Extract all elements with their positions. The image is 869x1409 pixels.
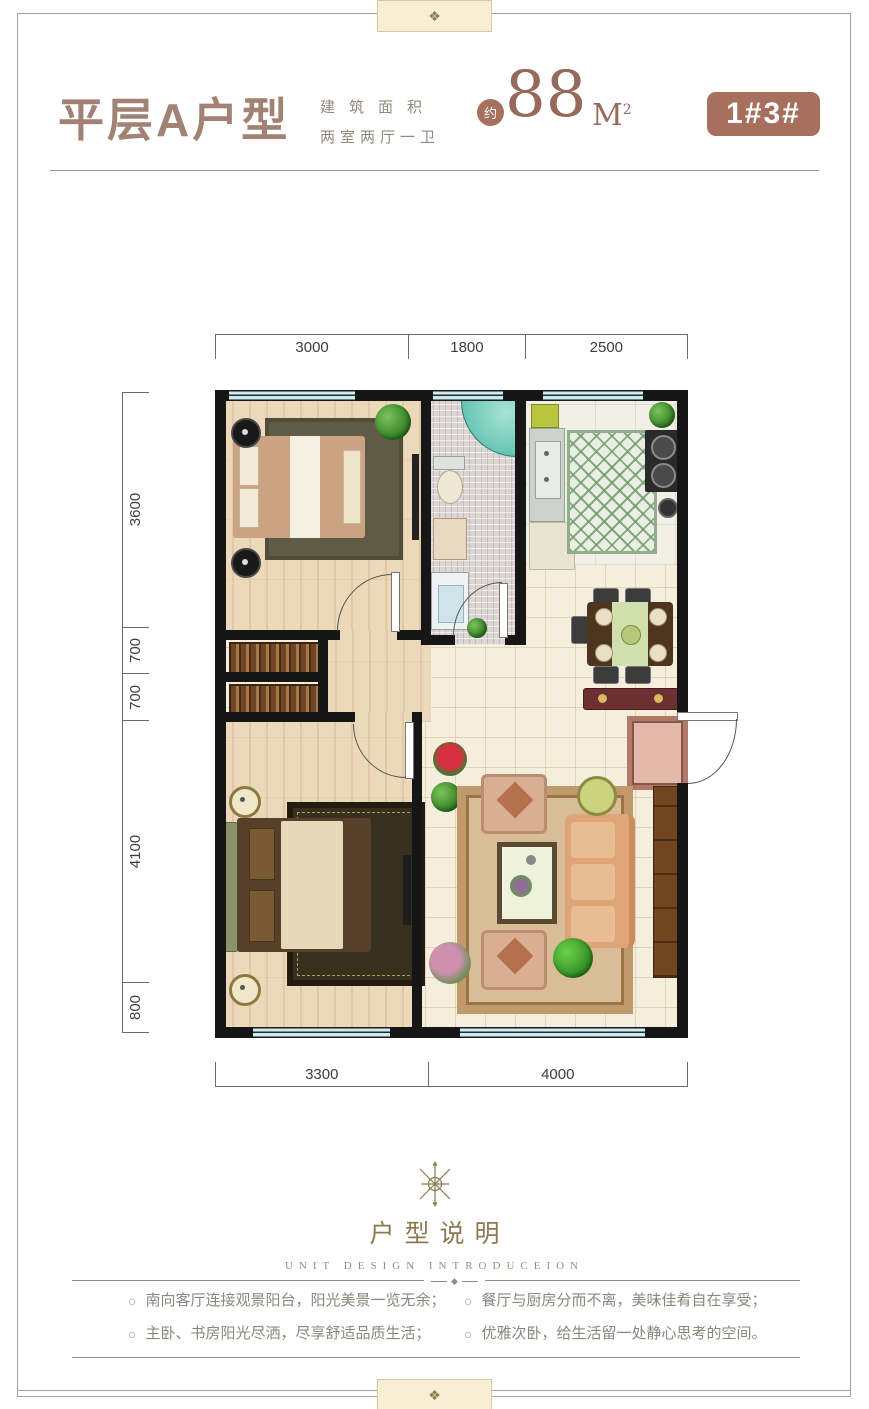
planter-box <box>531 404 559 428</box>
area-label: 建筑面积 两室两厅一卫 <box>320 96 440 147</box>
nightstand <box>231 418 261 448</box>
dim-segment: 700 <box>123 627 149 674</box>
second-bed <box>237 818 371 952</box>
wardrobe <box>229 642 322 674</box>
bottom-finial-ornament: ❖ <box>377 1379 492 1409</box>
dim-ruler-left: 3600 700 700 4100 800 <box>122 392 149 1033</box>
console-table <box>583 688 679 710</box>
legend-section: 户型说明 UNIT DESIGN INTRODUCEION <box>0 1160 869 1272</box>
bath-cabinet <box>433 518 467 560</box>
area-value: 88 <box>505 58 586 132</box>
notes-right-column: ○ 餐厅与厨房分而不离，美味佳肴自在享受； ○ 优雅次卧，给生活留一处静心思考的… <box>464 1291 766 1357</box>
wall <box>677 783 688 1038</box>
wall <box>226 630 340 640</box>
pillow <box>239 446 259 486</box>
note-item: ○ 餐厅与厨房分而不离，美味佳肴自在享受； <box>464 1291 766 1311</box>
pillow <box>239 488 259 528</box>
window <box>229 390 355 401</box>
floor-lamp <box>229 974 261 1006</box>
master-door-leaf <box>391 572 400 632</box>
wardrobe <box>229 684 322 714</box>
header-divider <box>50 170 819 171</box>
page-title: 平层A户型 <box>58 84 290 150</box>
notes-panel: ◆ ○ 南向客厅连接观景阳台，阳光美景一览无余； ○ 主卧、书房阳光尽洒，尽享舒… <box>72 1280 800 1358</box>
area-label-line1: 建筑面积 <box>320 96 440 117</box>
pot <box>658 498 678 518</box>
tall-cabinet <box>653 786 679 978</box>
wall <box>515 390 526 645</box>
top-finial-ornament: ❖ <box>377 0 492 32</box>
toilet-bowl <box>437 470 463 504</box>
notes-divider-ornament: ◆ <box>424 1276 485 1287</box>
floor-plan <box>215 390 688 1038</box>
dim-segment: 3600 <box>123 392 149 627</box>
window <box>460 1027 645 1038</box>
legend-title: 户型说明 <box>359 1214 509 1250</box>
area-unit: M2 <box>592 98 632 133</box>
bedroom-door-leaf <box>405 722 414 779</box>
stove <box>645 430 678 492</box>
bed-runner <box>290 436 320 538</box>
dim-ruler-bottom: 3300 4000 <box>215 1062 688 1087</box>
dim-segment: 800 <box>123 982 149 1033</box>
doormat-rug <box>627 716 688 790</box>
vestibule-floor <box>318 630 431 722</box>
wall <box>226 712 355 722</box>
red-flower-plant <box>433 742 467 776</box>
dim-segment: 4100 <box>123 720 149 982</box>
area-label-line2: 两室两厅一卫 <box>320 126 440 147</box>
circle-bullet-icon: ○ <box>128 1324 136 1344</box>
flower-plant <box>429 942 471 984</box>
compass-ornament-icon <box>411 1160 459 1208</box>
note-item: ○ 主卧、书房阳光尽洒，尽享舒适品质生活； <box>128 1324 445 1344</box>
kitchen-tile-rug <box>567 430 657 554</box>
dining-chair <box>625 666 651 684</box>
toilet-tank <box>433 456 465 470</box>
wall <box>677 390 688 719</box>
wall <box>421 390 431 640</box>
wall <box>226 672 326 682</box>
floorplan-poster: ❖ ❖ 平层A户型 建筑面积 两室两厅一卫 约 88 M2 1#3# 3000 … <box>0 0 869 1409</box>
coffee-table <box>497 842 557 924</box>
dim-segment: 2500 <box>525 335 688 359</box>
diamond-ornament-icon: ❖ <box>428 8 441 25</box>
dim-segment: 3000 <box>215 335 408 359</box>
dim-segment: 4000 <box>428 1062 688 1086</box>
wall <box>215 390 226 1038</box>
window <box>253 1027 390 1038</box>
building-number-badge: 1#3# <box>707 92 820 136</box>
plant <box>553 938 593 978</box>
sofa <box>565 814 635 948</box>
note-item: ○ 优雅次卧，给生活留一处静心思考的空间。 <box>464 1324 766 1344</box>
wall <box>421 635 455 645</box>
window <box>543 390 643 401</box>
legend-subtitle: UNIT DESIGN INTRODUCEION <box>285 1260 584 1272</box>
note-item: ○ 南向客厅连接观景阳台，阳光美景一览无余； <box>128 1291 445 1311</box>
notes-left-column: ○ 南向客厅连接观景阳台，阳光美景一览无余； ○ 主卧、书房阳光尽洒，尽享舒适品… <box>128 1291 445 1357</box>
diamond-ornament-icon: ◆ <box>451 1276 458 1287</box>
plant <box>649 402 675 428</box>
floor-lamp <box>229 786 261 818</box>
tv-panel <box>412 454 419 540</box>
dim-segment: 3300 <box>215 1062 428 1086</box>
master-bed <box>233 436 365 538</box>
approx-circle-badge: 约 <box>477 99 504 126</box>
dining-chair <box>593 666 619 684</box>
dining-table <box>587 602 673 666</box>
tv-panel <box>403 855 411 925</box>
nightstand <box>231 548 261 578</box>
kitchen-counter-sink <box>529 428 565 522</box>
foot-bench <box>343 450 361 524</box>
armchair <box>481 774 547 834</box>
circle-bullet-icon: ○ <box>464 1324 472 1344</box>
wall <box>505 635 526 645</box>
dim-segment: 700 <box>123 673 149 720</box>
dim-ruler-top: 3000 1800 2500 <box>215 334 688 359</box>
plant <box>375 404 411 440</box>
wall <box>318 640 328 722</box>
round-tray <box>577 776 617 816</box>
dim-segment: 1800 <box>408 335 525 359</box>
diamond-ornament-icon: ❖ <box>428 1387 441 1404</box>
circle-bullet-icon: ○ <box>464 1291 472 1311</box>
circle-bullet-icon: ○ <box>128 1291 136 1311</box>
armchair <box>481 930 547 990</box>
window <box>433 390 503 401</box>
